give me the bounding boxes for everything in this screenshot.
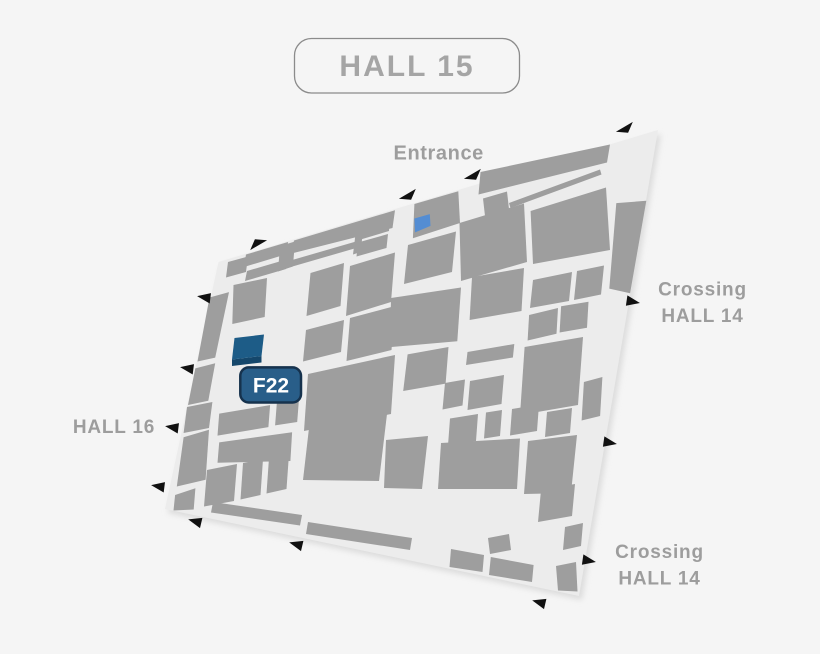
svg-text:Entrance: Entrance (394, 143, 484, 165)
svg-text:HALL 15: HALL 15 (339, 50, 474, 83)
svg-text:HALL 16: HALL 16 (73, 417, 155, 438)
svg-text:Crossing: Crossing (615, 542, 704, 563)
svg-text:HALL 14: HALL 14 (618, 569, 700, 590)
svg-text:Crossing: Crossing (658, 280, 747, 301)
svg-text:F22: F22 (253, 375, 289, 398)
svg-text:HALL 14: HALL 14 (661, 306, 743, 327)
